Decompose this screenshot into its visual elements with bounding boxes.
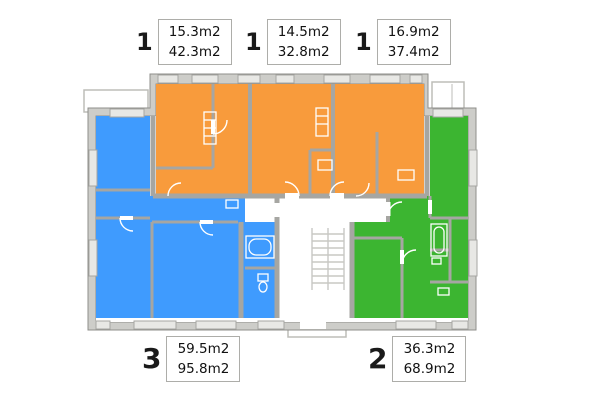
area-line-1: 14.5m2 [276,22,332,42]
unit-label-5: 2 36.3m2 68.9m2 [368,334,466,384]
area-line-1: 15.3m2 [167,22,223,42]
porch-outline-top-right [432,82,464,110]
room-count: 1 [245,30,262,54]
area-line-1: 59.5m2 [175,339,231,359]
floorplan-viewer: 1 15.3m2 42.3m2 1 14.5m2 32.8m2 1 16.9m2… [0,0,600,400]
room-count: 1 [136,30,153,54]
room-count: 3 [142,345,161,373]
area-box: 59.5m2 95.8m2 [166,336,240,382]
area-line-2: 32.8m2 [276,42,332,62]
area-line-2: 42.3m2 [167,42,223,62]
apartment-one-room-region[interactable] [156,84,424,196]
area-line-1: 16.9m2 [386,22,442,42]
room-count: 2 [368,345,387,373]
unit-label-1: 1 15.3m2 42.3m2 [136,18,232,66]
area-line-1: 36.3m2 [401,339,457,359]
area-box: 36.3m2 68.9m2 [392,336,466,382]
area-box: 14.5m2 32.8m2 [267,19,341,65]
entrance-door-opening [300,320,326,329]
area-line-2: 95.8m2 [175,359,231,379]
area-line-2: 68.9m2 [401,359,457,379]
unit-label-3: 1 16.9m2 37.4m2 [355,18,451,66]
area-box: 16.9m2 37.4m2 [377,19,451,65]
area-line-2: 37.4m2 [386,42,442,62]
unit-label-4: 3 59.5m2 95.8m2 [142,334,240,384]
area-box: 15.3m2 42.3m2 [158,19,232,65]
unit-label-2: 1 14.5m2 32.8m2 [245,18,341,66]
room-count: 1 [355,30,372,54]
